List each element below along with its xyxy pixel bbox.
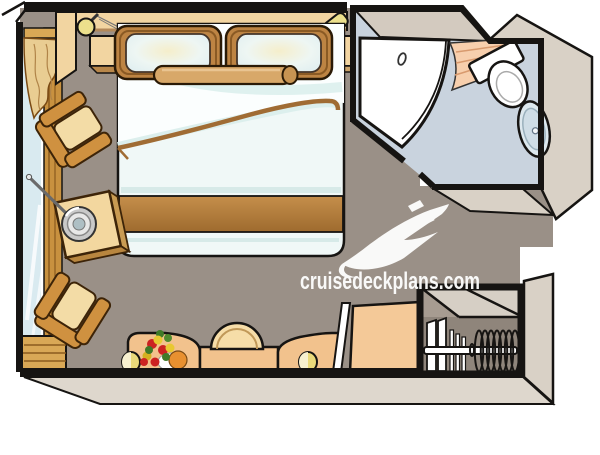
- cabinet: [350, 302, 420, 372]
- bolster-pillow: [154, 66, 298, 84]
- ice-bucket: [62, 207, 96, 241]
- bed-runner-band: [119, 196, 343, 232]
- stateroom-floorplan: cruisedeckplans.com: [0, 0, 600, 455]
- watermark-text: cruisedeckplans.com: [300, 268, 480, 295]
- window-sill: [22, 336, 66, 372]
- bottom-wall-extrusion: [24, 377, 553, 404]
